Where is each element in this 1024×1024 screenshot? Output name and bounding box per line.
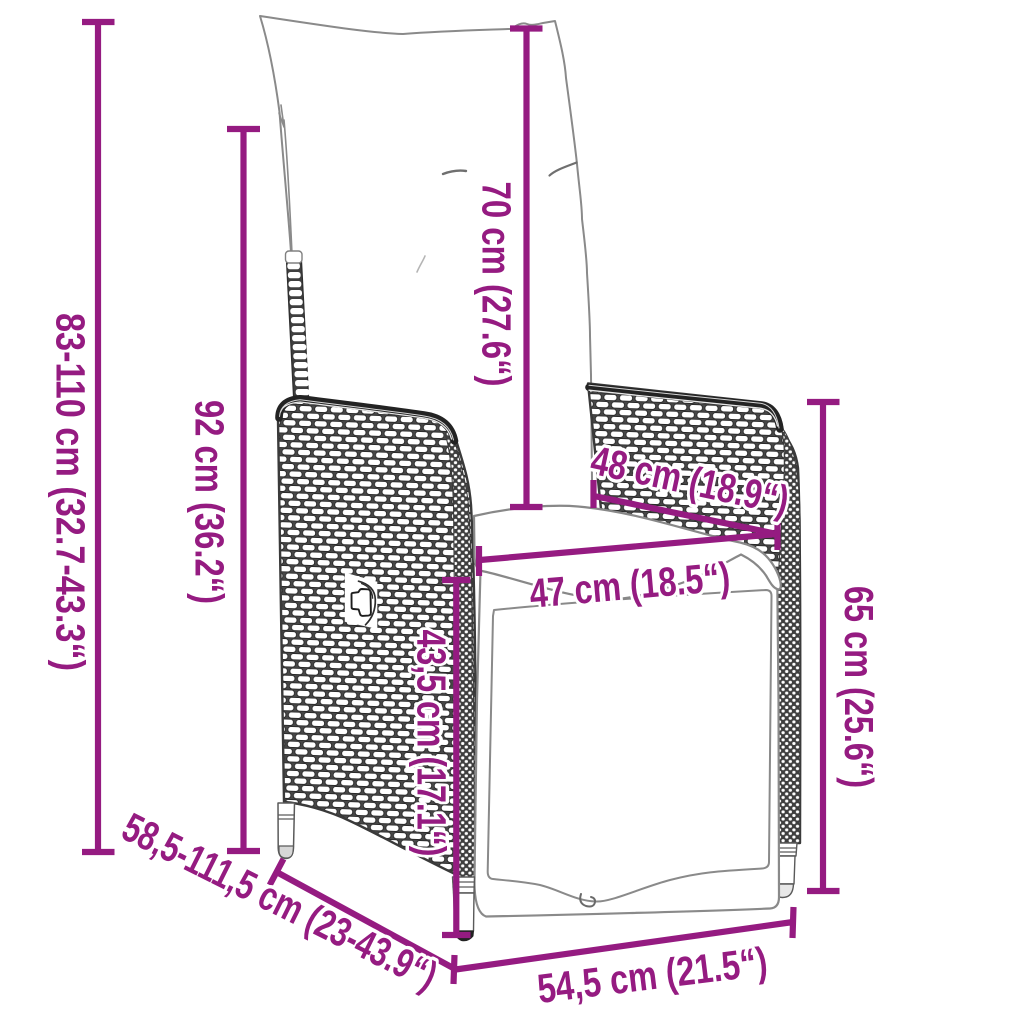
svg-text:70 cm (27.6“): 70 cm (27.6“) [474, 182, 520, 387]
svg-text:43,5 cm (17.1“): 43,5 cm (17.1“) [409, 630, 455, 857]
svg-text:92 cm (36.2“): 92 cm (36.2“) [187, 400, 233, 604]
svg-text:65 cm (25.6“): 65 cm (25.6“) [836, 586, 882, 788]
svg-text:83-110 cm (32.7-43.3“): 83-110 cm (32.7-43.3“) [48, 313, 94, 671]
